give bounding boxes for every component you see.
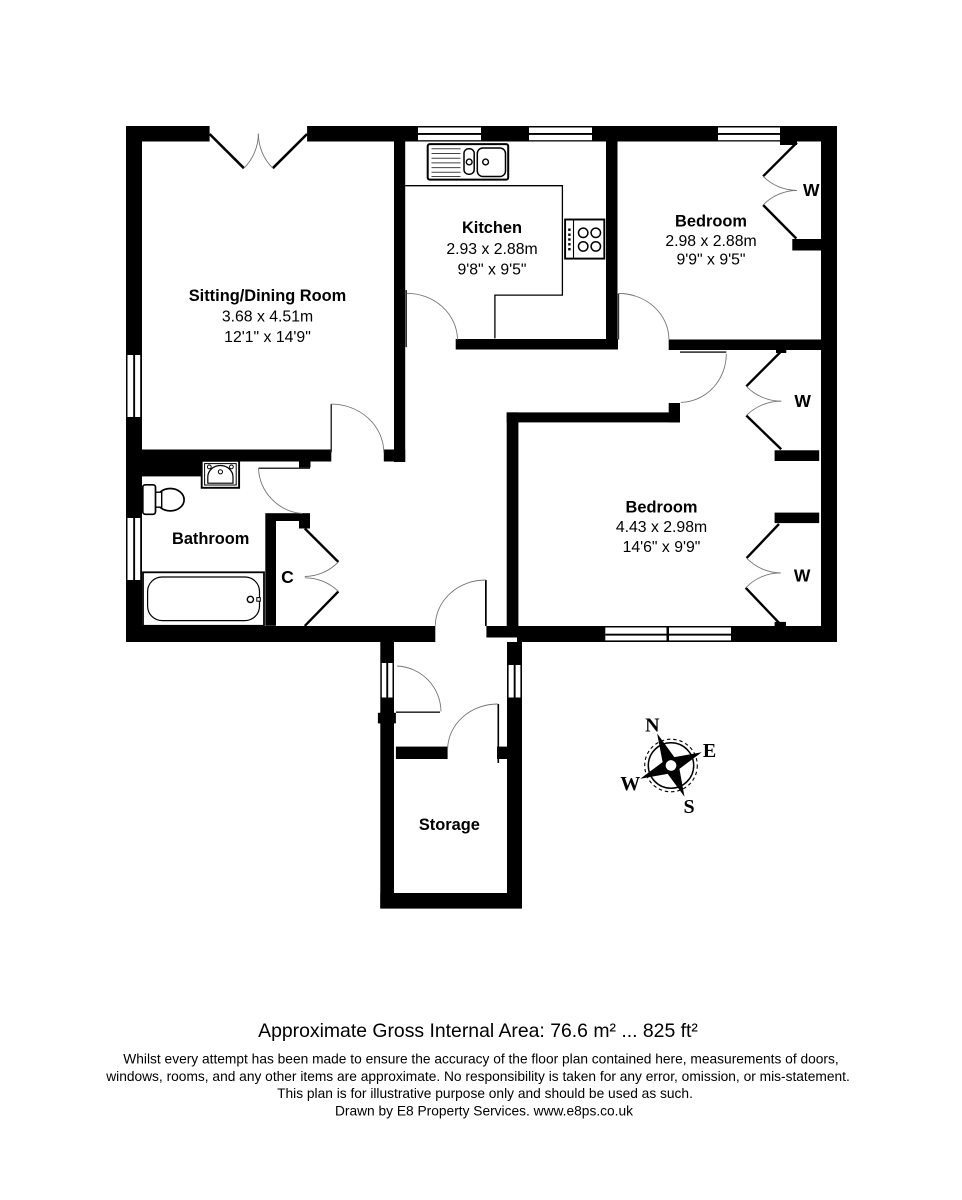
- svg-text:2.93 x 2.88m: 2.93 x 2.88m: [446, 241, 537, 258]
- svg-text:This plan is for illustrative: This plan is for illustrative purpose on…: [277, 1086, 693, 1101]
- svg-text:W: W: [794, 391, 811, 411]
- svg-text:S: S: [684, 796, 695, 818]
- svg-text:Whilst every attempt has been: Whilst every attempt has been made to en…: [123, 1051, 838, 1066]
- svg-text:Kitchen: Kitchen: [462, 219, 522, 237]
- svg-text:Bedroom: Bedroom: [626, 499, 698, 517]
- svg-text:Bathroom: Bathroom: [172, 530, 249, 548]
- svg-text:windows, rooms, and any other: windows, rooms, and any other items are …: [105, 1069, 850, 1084]
- svg-text:3.68 x 4.51m: 3.68 x 4.51m: [222, 309, 313, 326]
- svg-text:Sitting/Dining Room: Sitting/Dining Room: [189, 287, 347, 305]
- svg-text:Approximate Gross Internal Are: Approximate Gross Internal Area: 76.6 m²…: [258, 1020, 698, 1042]
- svg-text:12'1" x 14'9": 12'1" x 14'9": [224, 329, 311, 346]
- svg-text:Drawn by E8 Property Services.: Drawn by E8 Property Services. www.e8ps.…: [335, 1104, 633, 1119]
- svg-text:2.98 x 2.88m: 2.98 x 2.88m: [665, 233, 756, 250]
- svg-text:Storage: Storage: [419, 816, 480, 834]
- svg-text:9'8" x 9'5": 9'8" x 9'5": [457, 261, 526, 278]
- svg-text:C: C: [281, 567, 294, 587]
- svg-text:E: E: [703, 740, 716, 762]
- svg-text:W: W: [620, 773, 640, 795]
- svg-text:9'9" x 9'5": 9'9" x 9'5": [676, 252, 745, 269]
- svg-text:Bedroom: Bedroom: [675, 213, 747, 231]
- svg-text:W: W: [794, 565, 811, 585]
- svg-text:N: N: [645, 714, 660, 736]
- svg-text:14'6" x 9'9": 14'6" x 9'9": [623, 539, 701, 556]
- svg-text:W: W: [803, 180, 820, 200]
- svg-text:4.43 x 2.98m: 4.43 x 2.98m: [616, 519, 707, 536]
